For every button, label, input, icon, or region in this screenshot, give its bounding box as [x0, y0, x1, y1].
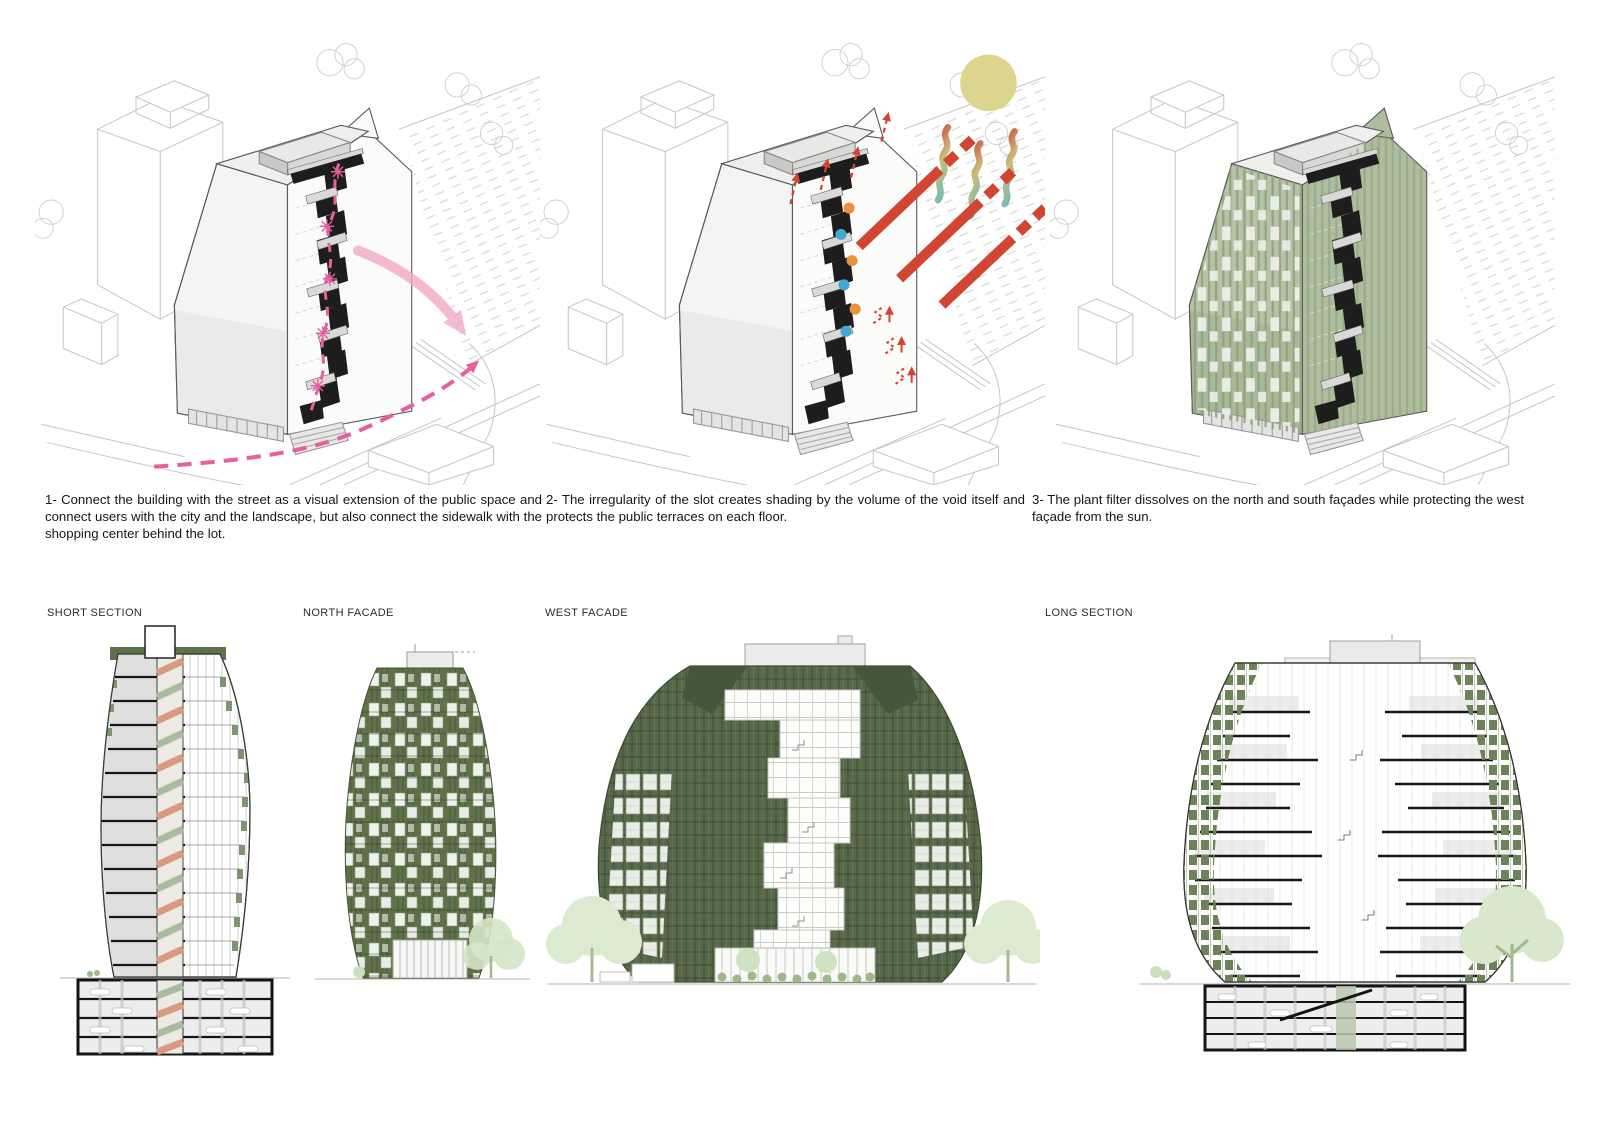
- shrub-icon: [353, 966, 365, 978]
- rooftop-box: [407, 644, 475, 668]
- concept-diagram-2: [540, 10, 1045, 485]
- rooftop-box: [1285, 634, 1475, 663]
- drawing-label-north-facade: NORTH FACADE: [303, 607, 394, 619]
- underground-parking: [78, 980, 272, 1054]
- concept-diagram-3: [1050, 10, 1555, 485]
- side-windows-right: [908, 768, 974, 958]
- sun-icon: [960, 55, 1017, 112]
- shrub-icon: [87, 970, 100, 977]
- long-section-drawing: [1140, 628, 1570, 1108]
- west-facade-drawing: [540, 628, 1040, 1098]
- rooftop-box: [145, 626, 175, 658]
- concept-caption-1: 1- Connect the building with the street …: [45, 491, 542, 542]
- concept-caption-3: 3- The plant filter dissolves on the nor…: [1032, 491, 1524, 525]
- drawing-label-west-facade: WEST FACADE: [545, 607, 628, 619]
- concept-diagram-1: [35, 10, 540, 485]
- site-walls: [600, 964, 674, 982]
- drawing-label-long-section: LONG SECTION: [1045, 607, 1133, 619]
- drawing-label-short-section: SHORT SECTION: [47, 607, 142, 619]
- shrub-icon: [1150, 966, 1171, 980]
- rooftop-box: [745, 636, 865, 668]
- north-facade-drawing: [315, 640, 530, 1070]
- board: 1- Connect the building with the street …: [0, 0, 1600, 1133]
- short-section-drawing: [60, 622, 290, 1072]
- concept-caption-2: 2- The irregularity of the slot creates …: [546, 491, 1025, 525]
- underground-parking: [1205, 986, 1465, 1050]
